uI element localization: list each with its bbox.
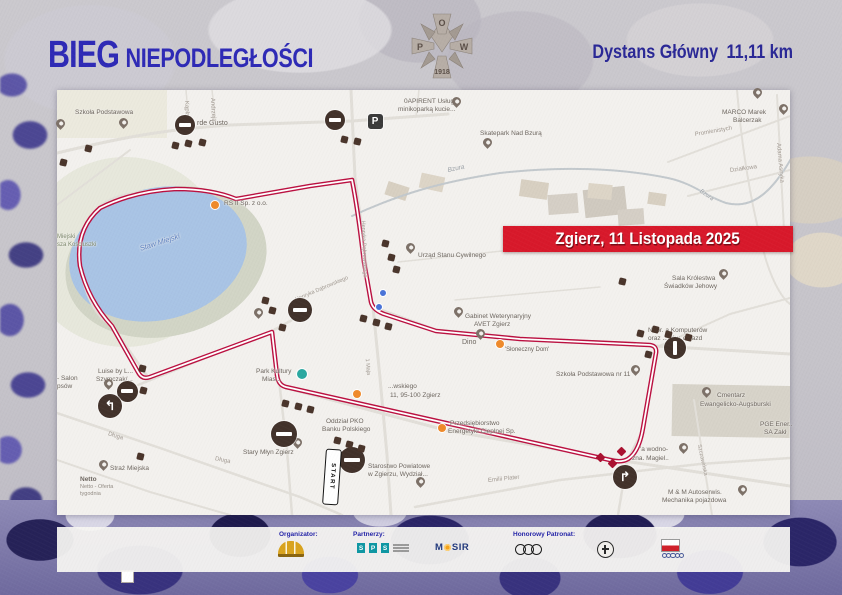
map-label: Netto - Oferta: [80, 485, 113, 491]
route-marker-square: [618, 277, 626, 285]
svg-text:W: W: [460, 42, 469, 52]
map-label: Adama Asnyka: [775, 143, 784, 183]
map-label: ...wskiego: [388, 384, 417, 391]
route-marker-diamond: [607, 458, 617, 468]
olympic-rings-icon: [663, 553, 684, 558]
map-label: RS II Sp. z o.o.: [224, 201, 268, 208]
partners-label: Partnerzy:: [353, 531, 385, 538]
map-pin: [404, 241, 417, 254]
map-label: Mechanika pojazdowa: [662, 498, 726, 505]
map-label: Park Kultury: [256, 369, 291, 376]
map-label: M & M Autoserwis.: [668, 490, 722, 497]
map-label: Sala Królestwa: [672, 276, 715, 283]
title-niepodleglosci: NIEPODLEGŁOŚCI: [126, 43, 314, 74]
route-marker-square: [136, 452, 144, 460]
route-marker-square: [387, 253, 395, 261]
map-label: Ewangelicko-Augsburski: [700, 402, 771, 409]
map-pin: [474, 327, 487, 340]
map-label: Promienistych: [694, 126, 732, 138]
poi-orange-icon: [211, 201, 219, 209]
route-marker-square: [340, 135, 348, 143]
route-marker-square: [392, 265, 400, 273]
no-entry-icon: [175, 115, 195, 135]
map-pin: [481, 136, 494, 149]
map-label: MARCO Marek: [722, 110, 766, 117]
route-marker-square: [268, 306, 276, 314]
mosir-partner-logo: M SIR: [435, 542, 469, 553]
organizer-label: Organizator:: [279, 531, 318, 538]
poi-blue-icon: [376, 304, 382, 310]
svg-text:1918: 1918: [434, 69, 450, 76]
map-label: tygodnia: [80, 492, 101, 498]
map-label: Straż Miejska: [110, 466, 149, 473]
map-pin: [717, 267, 730, 280]
map-label: 'Słoneczny Dom': [505, 347, 549, 353]
route-marker-square: [359, 314, 367, 322]
route-marker-square: [381, 239, 389, 247]
poi-orange-icon: [353, 390, 361, 398]
map-label: 'a wodno-: [640, 447, 668, 454]
route-marker-square: [138, 364, 146, 372]
map-label: Oddział PKO: [326, 419, 364, 426]
route-marker-square: [333, 436, 341, 444]
patron-rings-logo: [518, 544, 542, 555]
organizer-logo: [278, 541, 304, 557]
left-blue-texture: [0, 55, 60, 525]
sponsor-footer: Organizator: Partnerzy: S P S M SIR Hono…: [57, 527, 790, 572]
map-label: Stary Młyn Zgierz: [243, 450, 294, 457]
event-date-banner: Zgierz, 11 Listopada 2025: [503, 226, 793, 252]
map-label: sza Kościuszki: [57, 242, 96, 248]
map-pin: [97, 458, 110, 471]
svg-text:O: O: [438, 18, 445, 28]
route-marker-square: [357, 444, 365, 452]
turn-arrow-icon: ↰: [98, 394, 122, 418]
map-label: Skatepark Nad Bzurą: [480, 131, 542, 138]
pow-1918-badge-icon: O P W 1918: [409, 12, 475, 86]
poi-blue-icon: [380, 290, 386, 296]
map-label: Starostwo Powiatowe: [368, 464, 430, 471]
patronage-label: Honorowy Patronat:: [513, 531, 575, 538]
map-pin: [777, 102, 790, 115]
no-entry-icon: [271, 421, 297, 447]
route-marker-square: [294, 402, 302, 410]
polish-olympic-flag-logo: [661, 539, 680, 552]
map-label: Gabinet Weterynaryjny: [465, 314, 531, 321]
map-label: Dino: [462, 339, 476, 346]
map-label: 1 Maja: [363, 359, 370, 376]
route-marker-square: [198, 138, 206, 146]
distance-label: Dystans Główny 11,11 km: [592, 42, 793, 64]
route-marker-square: [59, 158, 67, 166]
patron-emblem-logo: [597, 541, 614, 558]
route-marker-square: [261, 296, 269, 304]
route-marker-square: [644, 350, 652, 358]
map-label: Szkoła Podstawowa: [75, 110, 133, 117]
map-label: zna. Magiel..: [632, 456, 669, 463]
map-label: Luise by L...: [98, 369, 133, 376]
sps-partner-logo: S P S: [357, 543, 409, 553]
route-marker-diamond: [595, 452, 605, 462]
route-map: Szkoła Podstawowarde Gusto0APIRENT Usług…: [57, 90, 790, 515]
map-label: Świadków Jehowy: [664, 284, 717, 291]
map-label: Szczawińska: [695, 444, 707, 476]
map-label: 11, 95-100 Zgierz: [390, 393, 440, 400]
poi-orange-icon: [438, 424, 446, 432]
mosir-sun-icon: [444, 544, 452, 552]
map-label: Bzura: [698, 189, 714, 203]
route-marker-diamond: [616, 446, 626, 456]
map-label: - Salon: [57, 376, 78, 383]
route-marker-square: [184, 139, 192, 147]
map-label: Bzura: [447, 165, 465, 175]
map-label: Henryka Dąbrowskiego: [359, 221, 366, 278]
title-bieg: BIEG: [48, 34, 119, 77]
route-marker-square: [636, 329, 644, 337]
page-title: BIEG NIEPODLEGŁOŚCI: [48, 34, 313, 77]
no-entry-icon: [288, 298, 312, 322]
route-marker-square: [353, 137, 361, 145]
map-label: Miejski: [57, 234, 75, 240]
map-label: 0APIRENT Usługi: [404, 99, 456, 106]
map-pin: [252, 306, 265, 319]
no-entry-icon: [664, 337, 686, 359]
map-label: Balcerzak: [733, 118, 762, 125]
map-label: Mias...: [262, 377, 281, 384]
map-label: Przedsiębiorstwo: [450, 421, 500, 428]
map-label: Długa: [107, 431, 124, 442]
map-label: Urząd Stanu Cywilnego: [418, 253, 486, 260]
map-label: Andrzeja: [209, 98, 216, 122]
svg-text:P: P: [417, 42, 423, 52]
route-marker-square: [306, 405, 314, 413]
poi-teal-icon: [297, 369, 307, 379]
route-marker-square: [281, 399, 289, 407]
map-pin: [677, 441, 690, 454]
map-label: minikoparką kucie...: [398, 107, 455, 114]
route-marker-square: [171, 141, 179, 149]
map-annotations: Szkoła Podstawowarde Gusto0APIRENT Usług…: [57, 90, 790, 515]
map-label: Energetyki Cieplnej Sp.: [448, 429, 516, 436]
route-marker-square: [139, 386, 147, 394]
map-label: Cmentarz: [717, 393, 745, 400]
map-label: Staw Miejski: [139, 232, 181, 252]
route-marker-square: [384, 322, 392, 330]
map-label: Banku Polskiego: [322, 427, 370, 434]
map-pin: [736, 483, 749, 496]
race-poster: BIEG NIEPODLEGŁOŚCI Dystans Główny 11,11…: [0, 0, 842, 595]
poi-orange-icon: [496, 340, 504, 348]
map-label: Emilii Plater: [488, 475, 520, 484]
route-marker-square: [84, 144, 92, 152]
map-pin: [452, 305, 465, 318]
route-marker-square: [372, 318, 380, 326]
map-label: Długa: [214, 456, 231, 465]
map-label: Działkowa: [730, 164, 758, 174]
parking-icon: P: [368, 114, 383, 129]
turn-arrow-icon: ↱: [613, 465, 637, 489]
map-label: psów: [57, 384, 72, 391]
map-pin: [700, 385, 713, 398]
map-label: Szkoła Podstawowa nr 11: [556, 372, 630, 379]
map-label: SA Zakł: [764, 430, 786, 437]
map-pin: [629, 363, 642, 376]
map-label: PGE Ener..: [760, 422, 793, 429]
map-label: AVET Zgierz: [474, 322, 510, 329]
map-pin: [117, 116, 130, 129]
map-label: Netto: [80, 477, 97, 484]
route-marker-square: [278, 323, 286, 331]
no-entry-icon: [325, 110, 345, 130]
